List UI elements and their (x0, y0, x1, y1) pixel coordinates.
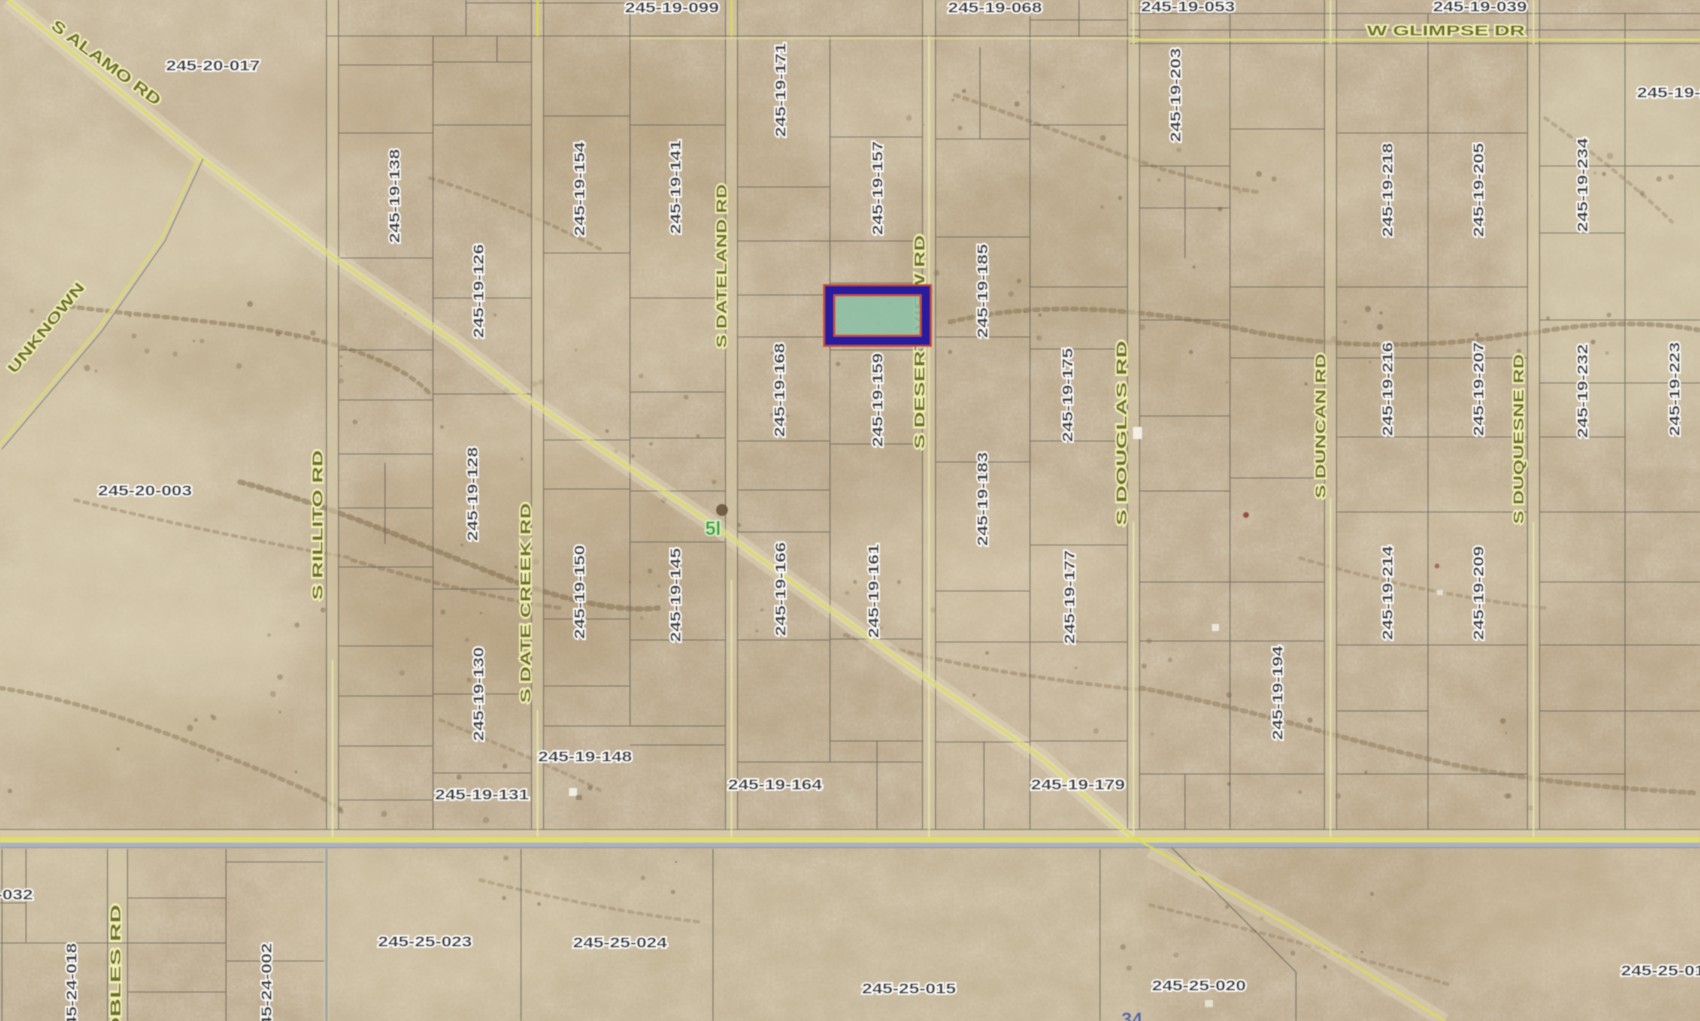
svg-text:245-25-024: 245-25-024 (573, 935, 668, 952)
svg-text:245-25-023: 245-25-023 (378, 934, 472, 951)
svg-text:245-19-179: 245-19-179 (1031, 777, 1125, 794)
svg-text:245-19-138: 245-19-138 (387, 149, 404, 243)
svg-text:245-19-203: 245-19-203 (1168, 48, 1185, 142)
svg-text:245-19-141: 245-19-141 (668, 139, 685, 234)
svg-text:245-19-214: 245-19-214 (1380, 545, 1397, 640)
svg-text:245-20-003: 245-20-003 (98, 483, 192, 500)
svg-text:245-19-145: 245-19-145 (668, 547, 685, 642)
svg-text:S RILLITO RD: S RILLITO RD (310, 450, 327, 600)
svg-text:245-25-010: 245-25-010 (1621, 963, 1700, 980)
svg-text:245-19-150: 245-19-150 (572, 545, 589, 639)
svg-text:245-19-161: 245-19-161 (866, 543, 883, 638)
svg-text:245-19-175: 245-19-175 (1060, 347, 1077, 442)
svg-text:245-19-205: 245-19-205 (1471, 142, 1488, 237)
svg-text:245-25-015: 245-25-015 (862, 981, 957, 998)
svg-text:245-19-126: 245-19-126 (471, 244, 488, 338)
svg-text:245-19-171: 245-19-171 (773, 42, 790, 137)
svg-text:245-19-099: 245-19-099 (625, 0, 719, 17)
svg-text:245-19-209: 245-19-209 (1471, 546, 1488, 640)
svg-text:245-19-157: 245-19-157 (870, 141, 887, 235)
svg-text:5l: 5l (705, 519, 721, 540)
svg-text:W GLIMPSE DR: W GLIMPSE DR (1367, 23, 1525, 40)
svg-text:34: 34 (1121, 1010, 1143, 1021)
svg-text:S DOUGLAS RD: S DOUGLAS RD (1114, 340, 1131, 525)
svg-text:245-19-164: 245-19-164 (728, 777, 823, 794)
svg-text:245-19-128: 245-19-128 (465, 447, 482, 541)
svg-text:245-19-130: 245-19-130 (471, 647, 488, 741)
svg-text:245-24-002: 245-24-002 (259, 943, 276, 1021)
svg-text:S DATE CREEK RD: S DATE CREEK RD (518, 503, 535, 703)
svg-text:245-19-131: 245-19-131 (435, 787, 530, 804)
svg-text:245-19-234: 245-19-234 (1575, 137, 1592, 232)
svg-text:245-25-020: 245-25-020 (1152, 978, 1246, 995)
svg-text:245-20-017: 245-20-017 (166, 58, 260, 75)
svg-text:245-24-032: 245-24-032 (0, 887, 33, 904)
svg-text:245-19-154: 245-19-154 (572, 141, 589, 236)
svg-text:245-19-039: 245-19-039 (1433, 0, 1527, 16)
svg-text:245-19-159: 245-19-159 (870, 353, 887, 447)
svg-text:245-19-177: 245-19-177 (1062, 550, 1079, 644)
svg-text:S DUNCAN RD: S DUNCAN RD (1313, 353, 1330, 498)
svg-text:245-19-185: 245-19-185 (975, 243, 992, 338)
svg-text:245-19-148: 245-19-148 (538, 749, 632, 766)
svg-text:245-19-234: 245-19-234 (1637, 85, 1700, 102)
svg-text:245-19-207: 245-19-207 (1471, 342, 1488, 436)
svg-text:S ROBLES RD: S ROBLES RD (108, 904, 125, 1021)
svg-text:245-19-218: 245-19-218 (1380, 143, 1397, 237)
svg-text:245-19-194: 245-19-194 (1270, 645, 1287, 740)
svg-text:S DUQUESNE RD: S DUQUESNE RD (1511, 354, 1528, 524)
svg-text:S DATELAND RD: S DATELAND RD (714, 184, 731, 348)
svg-text:245-19-053: 245-19-053 (1141, 0, 1235, 16)
svg-text:245-19-068: 245-19-068 (948, 0, 1042, 17)
svg-text:245-19-232: 245-19-232 (1575, 344, 1592, 438)
svg-text:245-19-183: 245-19-183 (975, 452, 992, 546)
svg-text:245-19-166: 245-19-166 (773, 542, 790, 636)
svg-text:245-24-018: 245-24-018 (64, 943, 81, 1021)
svg-text:245-19-216: 245-19-216 (1380, 342, 1397, 436)
svg-text:245-19-168: 245-19-168 (772, 343, 789, 437)
svg-text:245-19-223: 245-19-223 (1667, 342, 1684, 436)
